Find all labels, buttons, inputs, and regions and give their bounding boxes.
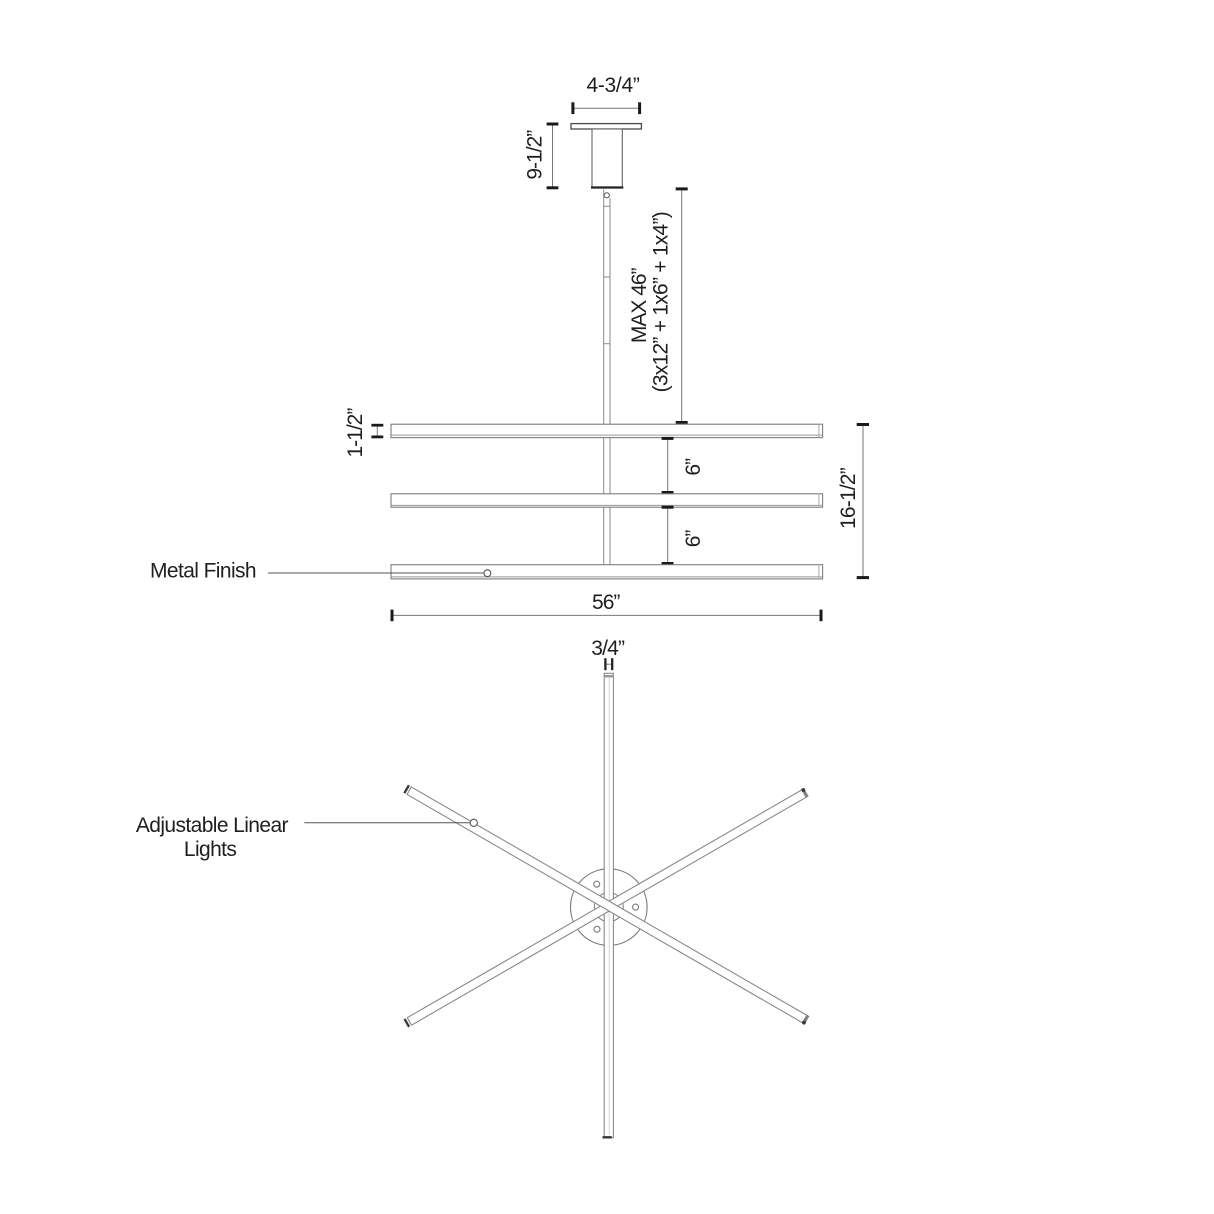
svg-text:Metal Finish: Metal Finish [150,560,256,583]
svg-text:56”: 56” [592,591,620,614]
svg-text:6”: 6” [682,458,705,476]
svg-text:9-1/2”: 9-1/2” [524,130,547,180]
svg-text:MAX 46”: MAX 46” [628,267,651,343]
svg-text:4-3/4”: 4-3/4” [586,74,639,97]
svg-text:Lights: Lights [184,838,237,861]
svg-text:1-1/2”: 1-1/2” [344,408,367,458]
svg-text:(3x12” + 1x6” + 1x4”): (3x12” + 1x6” + 1x4”) [650,212,673,392]
svg-text:16-1/2”: 16-1/2” [837,467,860,529]
svg-text:6”: 6” [682,530,705,548]
svg-text:3/4”: 3/4” [591,637,625,660]
svg-text:Adjustable Linear: Adjustable Linear [136,814,289,837]
